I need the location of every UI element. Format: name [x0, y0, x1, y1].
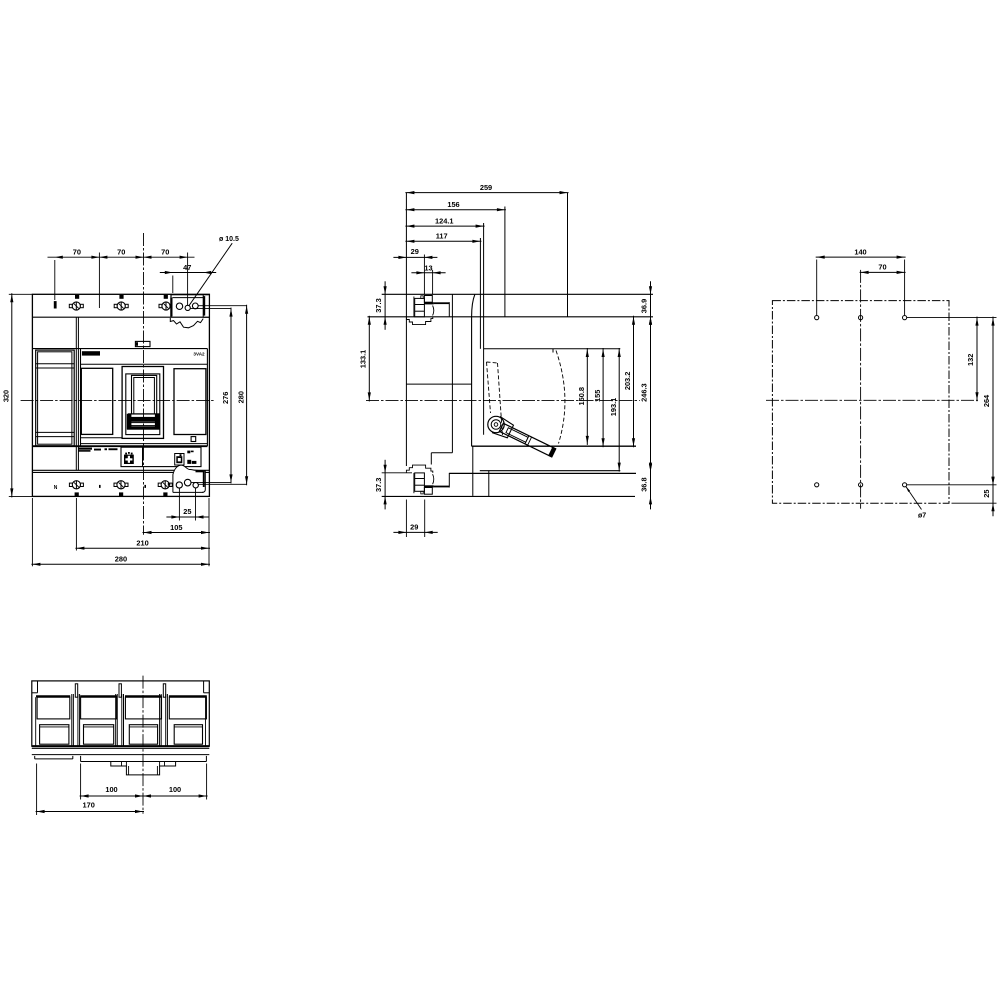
svg-text:105: 105	[170, 523, 182, 532]
svg-text:70: 70	[161, 247, 169, 256]
svg-text:124.1: 124.1	[435, 216, 454, 225]
svg-text:70: 70	[73, 247, 81, 256]
svg-text:246.3: 246.3	[640, 383, 649, 402]
svg-text:25: 25	[982, 489, 991, 497]
svg-text:25: 25	[183, 507, 191, 516]
svg-text:280: 280	[237, 391, 246, 403]
svg-text:203.2: 203.2	[623, 372, 632, 391]
svg-text:13: 13	[424, 263, 432, 272]
svg-text:36.9: 36.9	[640, 299, 649, 313]
svg-text:100: 100	[169, 785, 181, 794]
svg-text:N: N	[54, 485, 58, 491]
svg-text:264: 264	[982, 394, 991, 407]
svg-text:170: 170	[83, 800, 95, 809]
svg-text:37.3: 37.3	[374, 298, 383, 312]
svg-text:132: 132	[966, 354, 975, 366]
svg-text:70: 70	[878, 263, 886, 272]
svg-text:29: 29	[410, 523, 418, 532]
svg-text:280: 280	[115, 555, 127, 564]
svg-text:70: 70	[117, 247, 125, 256]
svg-text:36.8: 36.8	[640, 477, 649, 491]
svg-text:210: 210	[136, 539, 148, 548]
svg-text:133.1: 133.1	[358, 350, 367, 369]
svg-text:150.8: 150.8	[577, 387, 586, 406]
svg-text:100: 100	[105, 785, 117, 794]
svg-text:276: 276	[221, 392, 230, 404]
svg-text:156: 156	[447, 200, 459, 209]
svg-text:3VA2: 3VA2	[193, 352, 205, 357]
svg-text:ø7: ø7	[918, 513, 926, 520]
svg-text:259: 259	[480, 183, 492, 192]
svg-text:320: 320	[2, 390, 11, 402]
svg-text:37.3: 37.3	[374, 478, 383, 492]
svg-text:ø 10.5: ø 10.5	[219, 236, 239, 243]
svg-text:47: 47	[183, 263, 191, 272]
svg-text:193.1: 193.1	[609, 398, 618, 417]
svg-text:117: 117	[436, 232, 448, 241]
svg-text:29: 29	[411, 247, 419, 256]
svg-text:140: 140	[854, 247, 866, 256]
svg-text:155: 155	[593, 390, 602, 402]
